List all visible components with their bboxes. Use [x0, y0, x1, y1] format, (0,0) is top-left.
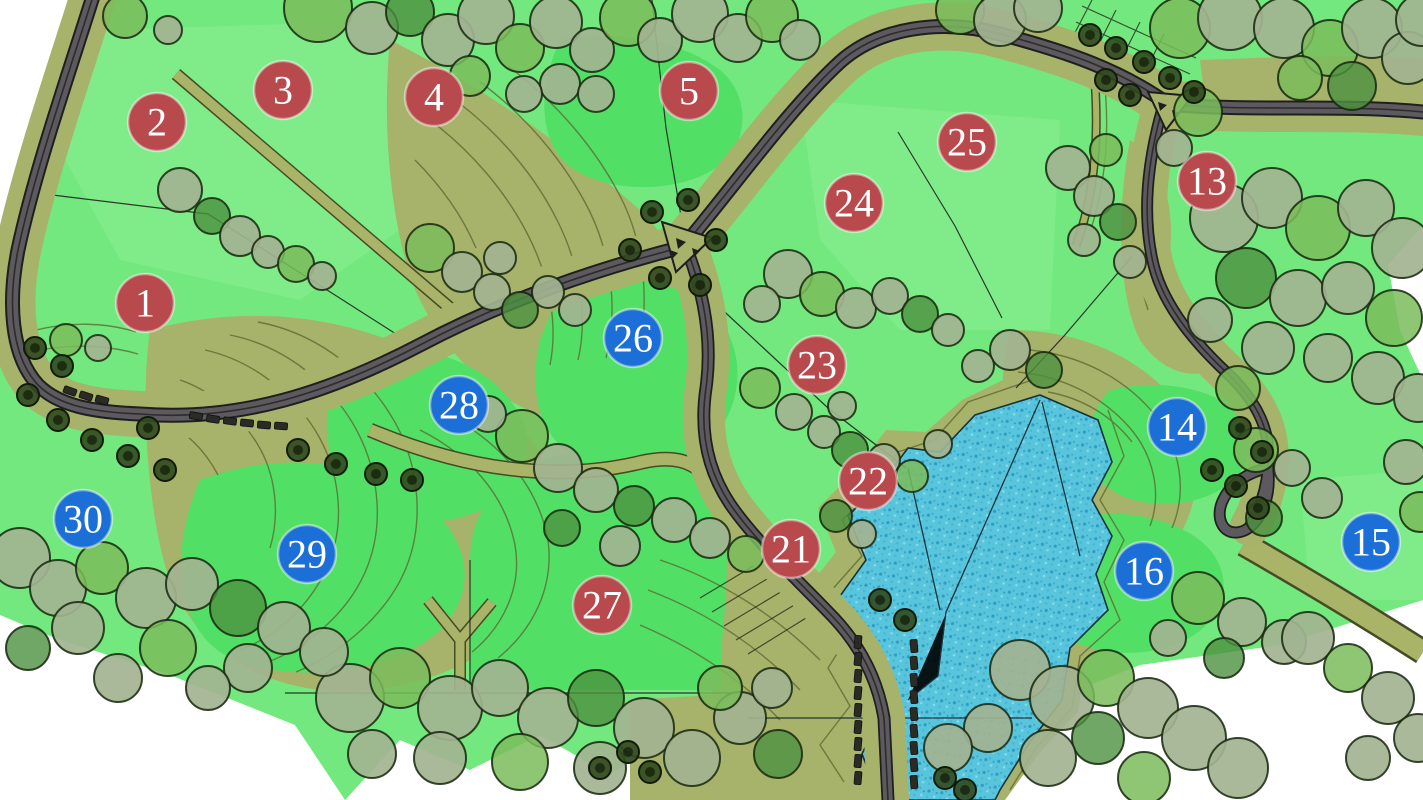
street-tree-icon — [1225, 475, 1247, 497]
tree-icon — [1216, 366, 1260, 410]
tree-icon — [1118, 752, 1170, 800]
parked-car — [910, 741, 918, 755]
tree-icon — [103, 0, 147, 38]
tree-icon — [1270, 270, 1326, 326]
tree-icon — [506, 76, 542, 112]
tree-icon — [1204, 638, 1244, 678]
tree-icon — [1242, 322, 1294, 374]
map-marker-29[interactable]: 29 — [278, 525, 336, 583]
parked-car — [854, 754, 862, 768]
tree-icon — [1302, 478, 1342, 518]
map-marker-23[interactable]: 23 — [788, 336, 846, 394]
street-tree-icon — [1247, 497, 1269, 519]
tree-icon — [484, 242, 516, 274]
tree-icon — [848, 520, 876, 548]
parked-car — [910, 775, 918, 789]
parked-car — [910, 673, 918, 687]
tree-icon — [1278, 56, 1322, 100]
tree-icon — [776, 394, 812, 430]
tree-icon — [1208, 738, 1268, 798]
parked-car — [854, 635, 862, 649]
map-marker-14[interactable]: 14 — [1148, 398, 1206, 456]
street-tree-icon — [81, 429, 103, 451]
parked-car — [854, 652, 862, 666]
street-tree-icon — [24, 337, 46, 359]
tree-icon — [140, 620, 196, 676]
parked-car — [206, 415, 220, 424]
street-tree-icon — [137, 417, 159, 439]
tree-icon — [1188, 298, 1232, 342]
street-tree-icon — [639, 761, 661, 783]
tree-icon — [836, 288, 876, 328]
tree-icon — [154, 16, 182, 44]
parked-car — [854, 669, 862, 683]
tree-icon — [158, 168, 202, 212]
tree-icon — [348, 730, 396, 778]
map-marker-28[interactable]: 28 — [430, 376, 488, 434]
tree-icon — [962, 350, 994, 382]
marker-number-label: 30 — [63, 497, 103, 542]
street-tree-icon — [365, 463, 387, 485]
tree-icon — [896, 460, 928, 492]
parked-car — [854, 737, 862, 751]
tree-icon — [1020, 730, 1076, 786]
street-tree-icon — [689, 274, 711, 296]
tree-icon — [578, 76, 614, 112]
street-tree-icon — [1119, 84, 1141, 106]
map-marker-26[interactable]: 26 — [604, 309, 662, 367]
street-tree-icon — [1095, 69, 1117, 91]
parked-car — [854, 703, 862, 717]
tree-icon — [540, 64, 580, 104]
tree-icon — [574, 468, 618, 512]
street-tree-icon — [649, 267, 671, 289]
marker-number-label: 21 — [771, 527, 811, 572]
street-tree-icon — [869, 589, 891, 611]
tree-icon — [559, 294, 591, 326]
tree-icon — [50, 324, 82, 356]
parked-car — [910, 758, 918, 772]
tree-icon — [532, 276, 564, 308]
tree-icon — [932, 314, 964, 346]
tree-icon — [492, 734, 548, 790]
marker-number-label: 27 — [582, 583, 622, 628]
tree-icon — [600, 526, 640, 566]
parked-car — [274, 422, 287, 430]
map-marker-1[interactable]: 1 — [116, 274, 174, 332]
tree-icon — [664, 730, 720, 786]
map-marker-4[interactable]: 4 — [405, 68, 463, 126]
tree-icon — [1026, 352, 1062, 388]
tree-icon — [1372, 218, 1423, 278]
tree-icon — [1304, 334, 1352, 382]
map-marker-22[interactable]: 22 — [839, 452, 897, 510]
street-tree-icon — [1251, 441, 1273, 463]
tree-icon — [1114, 246, 1146, 278]
tree-icon — [1346, 736, 1390, 780]
map-marker-2[interactable]: 2 — [128, 93, 186, 151]
marker-number-label: 22 — [848, 459, 888, 504]
street-tree-icon — [17, 384, 39, 406]
tree-icon — [1072, 712, 1124, 764]
marker-number-label: 29 — [287, 532, 327, 577]
map-marker-15[interactable]: 15 — [1342, 513, 1400, 571]
street-tree-icon — [954, 779, 976, 800]
site-plan-map: 123451314151621222324252627282930 — [0, 0, 1423, 800]
street-tree-icon — [677, 189, 699, 211]
tree-icon — [1068, 224, 1100, 256]
parked-car — [910, 656, 918, 670]
marker-number-label: 23 — [797, 343, 837, 388]
marker-number-label: 15 — [1351, 520, 1391, 565]
tree-icon — [1322, 262, 1374, 314]
map-marker-16[interactable]: 16 — [1115, 542, 1173, 600]
tree-icon — [754, 730, 802, 778]
marker-number-label: 14 — [1157, 405, 1197, 450]
street-tree-icon — [589, 757, 611, 779]
marker-number-label: 28 — [439, 383, 479, 428]
street-tree-icon — [1159, 67, 1181, 89]
tree-icon — [52, 602, 104, 654]
street-tree-icon — [1133, 51, 1155, 73]
street-tree-icon — [117, 445, 139, 467]
parked-car — [854, 686, 862, 700]
street-tree-icon — [894, 609, 916, 631]
street-tree-icon — [934, 767, 956, 789]
tree-icon — [308, 262, 336, 290]
tree-icon — [1150, 620, 1186, 656]
tree-icon — [990, 330, 1030, 370]
marker-number-label: 13 — [1187, 159, 1227, 204]
tree-icon — [1274, 450, 1310, 486]
tree-icon — [744, 286, 780, 322]
tree-icon — [414, 732, 466, 784]
map-marker-30[interactable]: 30 — [54, 490, 112, 548]
marker-number-label: 2 — [147, 100, 167, 145]
map-marker-24[interactable]: 24 — [825, 174, 883, 232]
marker-number-label: 1 — [135, 281, 155, 326]
tree-icon — [224, 644, 272, 692]
tree-icon — [924, 724, 972, 772]
street-tree-icon — [617, 741, 639, 763]
tree-icon — [780, 20, 820, 60]
tree-icon — [690, 518, 730, 558]
map-marker-27[interactable]: 27 — [573, 576, 631, 634]
street-tree-icon — [1201, 459, 1223, 481]
street-tree-icon — [287, 439, 309, 461]
parked-car — [257, 421, 271, 429]
parked-car — [223, 417, 237, 426]
tree-icon — [828, 392, 856, 420]
street-tree-icon — [705, 229, 727, 251]
map-marker-21[interactable]: 21 — [762, 520, 820, 578]
marker-number-label: 3 — [273, 68, 293, 113]
street-tree-icon — [401, 469, 423, 491]
street-tree-icon — [1183, 81, 1205, 103]
street-tree-icon — [47, 409, 69, 431]
map-marker-5[interactable]: 5 — [660, 62, 718, 120]
map-marker-25[interactable]: 25 — [938, 113, 996, 171]
tree-icon — [6, 626, 50, 670]
marker-number-label: 5 — [679, 69, 699, 114]
marker-number-label: 24 — [834, 181, 874, 226]
tree-icon — [1172, 572, 1224, 624]
tree-icon — [300, 628, 348, 676]
street-tree-icon — [51, 355, 73, 377]
street-tree-icon — [1229, 417, 1251, 439]
marker-number-label: 16 — [1124, 549, 1164, 594]
marker-number-label: 26 — [613, 316, 653, 361]
parked-car — [910, 707, 918, 721]
map-marker-3[interactable]: 3 — [254, 61, 312, 119]
marker-number-label: 25 — [947, 120, 987, 165]
tree-icon — [94, 654, 142, 702]
parked-car — [910, 639, 918, 653]
parked-car — [854, 720, 862, 734]
street-tree-icon — [619, 239, 641, 261]
tree-icon — [752, 668, 792, 708]
street-tree-icon — [641, 201, 663, 223]
tree-icon — [1216, 248, 1276, 308]
parked-car — [910, 690, 918, 704]
tree-icon — [544, 510, 580, 546]
street-tree-icon — [1079, 24, 1101, 46]
tree-icon — [614, 486, 654, 526]
marker-number-label: 4 — [424, 75, 444, 120]
street-tree-icon — [1105, 37, 1127, 59]
tree-icon — [1384, 440, 1423, 484]
tree-icon — [1328, 62, 1376, 110]
street-tree-icon — [154, 459, 176, 481]
parked-car — [854, 771, 862, 785]
parked-car — [240, 419, 254, 427]
tree-icon — [1100, 204, 1136, 240]
tree-icon — [924, 430, 952, 458]
tree-icon — [85, 335, 111, 361]
tree-icon — [740, 368, 780, 408]
tree-icon — [698, 666, 742, 710]
tree-icon — [728, 536, 764, 572]
map-marker-13[interactable]: 13 — [1178, 152, 1236, 210]
street-tree-icon — [325, 453, 347, 475]
parked-car — [910, 724, 918, 738]
tree-icon — [820, 500, 852, 532]
tree-icon — [1090, 134, 1122, 166]
tree-icon — [1366, 290, 1422, 346]
tree-icon — [186, 666, 230, 710]
